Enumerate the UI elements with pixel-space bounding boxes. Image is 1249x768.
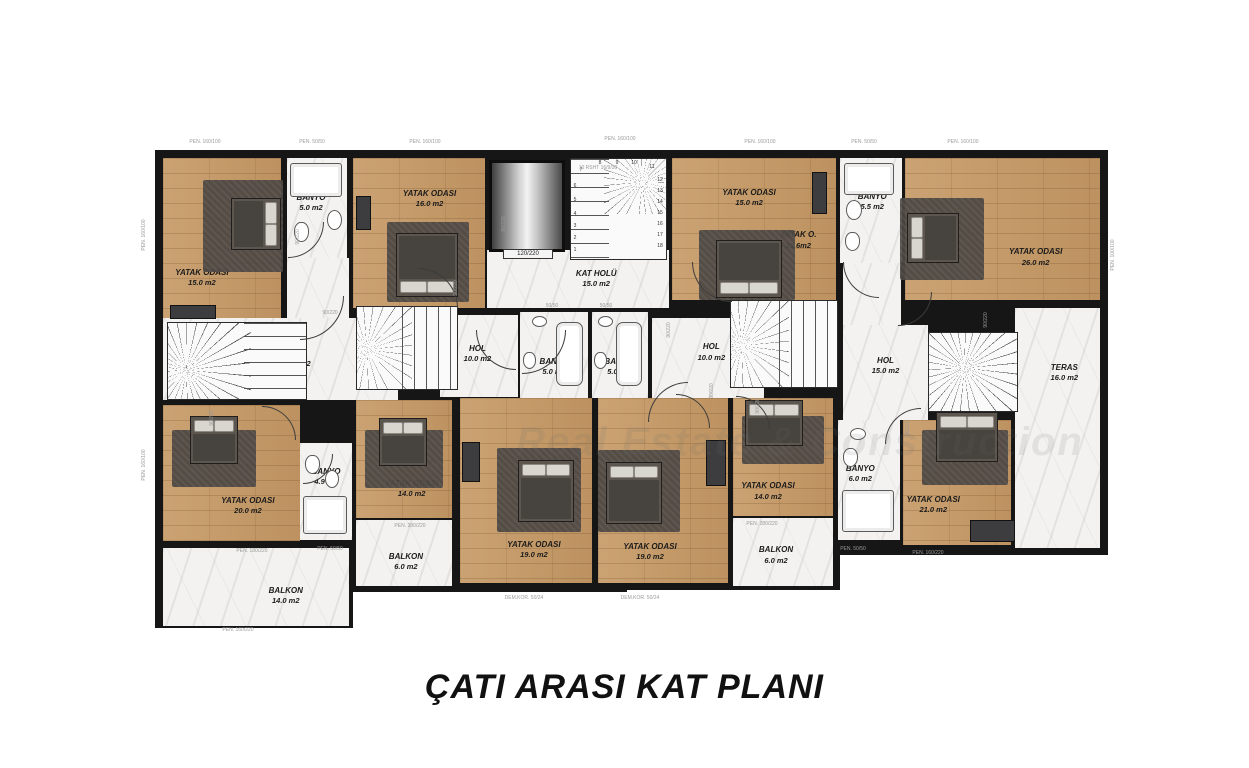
stair-step-number: 3 [574, 223, 577, 229]
stair-step-number: 1 [574, 247, 577, 253]
bed-bedroom-bottom-4 [606, 462, 662, 524]
room-area: 26.0 m2 [1009, 258, 1062, 268]
room-area: 19.0 m2 [507, 550, 560, 560]
dimension-label: PEN. 160/220 [222, 627, 253, 633]
dimension-label: PEN. 160/100 [947, 139, 978, 145]
room-name: YATAK ODASI [722, 188, 775, 198]
shower-fixture [303, 496, 347, 534]
room-label-kat-holu: KAT HOLÜ15.0 m2 [576, 269, 617, 289]
bed-pillow [634, 466, 658, 478]
sink-fixture [532, 316, 547, 327]
bed-pillow [911, 238, 923, 259]
room-teras [1015, 308, 1100, 548]
bed-pillow [383, 422, 403, 434]
sink-fixture [327, 210, 342, 230]
stair-step-number: 2 [574, 235, 577, 241]
wc-fixture [594, 352, 607, 369]
dimension-label: PEN. 100/100 [1110, 239, 1116, 270]
bed-bedroom-top-right [907, 213, 959, 263]
dimension-label: PEN. 280/220 [394, 523, 425, 529]
bed-duvet [234, 201, 263, 247]
dimension-label: PEN. 180/220 [236, 548, 267, 554]
room-name: YATAK ODASI [623, 541, 676, 551]
bed-duvet [193, 434, 235, 461]
dimension-label: PEN. 280/220 [746, 521, 777, 527]
stair-step-number: 18 [657, 243, 663, 249]
dimension-label: 10 RSHT 16/9/30 [579, 165, 618, 171]
stair-step-number: 16 [657, 221, 663, 227]
stair-step-number: 14 [657, 199, 663, 205]
room-label-bedroom-bottom-3: YATAK ODASI19.0 m2 [507, 540, 560, 560]
room-name: YATAK ODASI [221, 496, 274, 506]
plan-title: ÇATI ARASI KAT PLANI [0, 668, 1249, 707]
shower-fixture [844, 163, 894, 195]
wc-fixture [845, 232, 860, 251]
stair-core-top [570, 158, 667, 260]
stair-step-number: 4 [574, 211, 577, 217]
room-name: BALKON [269, 586, 303, 596]
room-label-balkon-left: BALKON14.0 m2 [269, 586, 303, 606]
stair-step-number: 6 [574, 183, 577, 189]
room-label-hol-15: HOL15.0 m2 [872, 356, 900, 376]
floor-plan-page: YATAK ODASI15.0 m2BANYO5.0 m2YATAK ODASI… [0, 0, 1249, 768]
dimension-label: 50/50 [600, 303, 613, 309]
room-name: YATAK ODASI [907, 495, 960, 505]
bed-pillow [911, 217, 923, 238]
dresser [970, 520, 1015, 542]
bed-pillow [265, 202, 277, 224]
stair-center-right [730, 300, 838, 388]
bed-bedroom-top-left [231, 198, 281, 250]
stair-left-fan [167, 322, 307, 400]
bed-pillow [967, 416, 994, 428]
room-area: 10.0 m2 [698, 353, 726, 363]
stair-step-number: 17 [657, 232, 663, 238]
dimension-label: PEN. 160/100 [409, 139, 440, 145]
room-area: 14.0 m2 [741, 492, 794, 502]
tub-fixture [616, 322, 642, 386]
room-label-bedroom-bottom-right: YATAK ODASI21.0 m2 [907, 495, 960, 515]
dimension-label: PEN. 160/100 [604, 136, 635, 142]
room-label-teras: TERAS16.0 m2 [1051, 363, 1079, 383]
dresser [812, 172, 827, 214]
room-label-hol-10-right: HOL10.0 m2 [698, 342, 726, 362]
bed-duvet [939, 430, 995, 459]
room-area: 21.0 m2 [907, 505, 960, 515]
stair-step-number: 10 [631, 160, 637, 166]
dimension-label: 90/220 [322, 310, 337, 316]
dimension-label: PEN. 160/100 [189, 139, 220, 145]
room-label-bedroom-bottom-4: YATAK ODASI19.0 m2 [623, 541, 676, 561]
stair-step-number: 5 [574, 197, 577, 203]
sink-fixture [846, 200, 862, 220]
room-name: YATAK ODASI [507, 540, 560, 550]
dresser [706, 440, 726, 486]
elevator-door-label: 120/220 [503, 249, 553, 259]
bed-pillow [940, 416, 967, 428]
dimension-label: 90/220 [755, 398, 761, 413]
dimension-label: 90/220 [501, 216, 507, 231]
stair-right-fan [928, 332, 1018, 412]
dimension-label: 90/220 [453, 280, 459, 295]
room-area: 6.0 m2 [846, 474, 875, 484]
bed-duvet [521, 478, 571, 519]
room-area: 20.0 m2 [221, 506, 274, 516]
room-area: 15.0 m2 [872, 366, 900, 376]
room-label-bedroom-top-right: YATAK ODASI26.0 m2 [1009, 247, 1062, 267]
dimension-label: 90/220 [295, 229, 301, 244]
dimension-label: PEN. 160/100 [141, 449, 147, 480]
room-label-balkon-5: BALKON6.0 m2 [759, 545, 793, 565]
room-label-bedroom-top-3: YATAK ODASI15.0 m2 [722, 188, 775, 208]
dresser [462, 442, 480, 482]
stair-center-left [356, 306, 458, 390]
dimension-label: DEM.KOR. 50/24 [621, 595, 660, 601]
bed-pillow [265, 224, 277, 246]
room-label-balkon-2: BALKON6.0 m2 [389, 552, 423, 572]
floor-plan-canvas: YATAK ODASI15.0 m2BANYO5.0 m2YATAK ODASI… [0, 0, 1249, 768]
sink-fixture [850, 428, 866, 440]
room-name: YATAK ODASI [403, 188, 456, 198]
dimension-label: 90/220 [209, 410, 215, 425]
dimension-label: PEN. 50/50 [317, 546, 343, 552]
bed-bedroom-bottom-2 [379, 418, 427, 466]
dimension-label: PEN. 50/50 [299, 139, 325, 145]
dimension-label: PEN. 160/100 [141, 219, 147, 250]
stair-step-number: 15 [657, 210, 663, 216]
stair-step-number: 12 [657, 177, 663, 183]
bed-pillow [774, 404, 799, 416]
room-name: HOL [872, 356, 900, 366]
stair-step-number: 11 [649, 164, 654, 170]
bed-bedroom-bottom-3 [518, 460, 574, 522]
room-label-bedroom-bottom-5: YATAK ODASI14.0 m2 [741, 481, 794, 501]
dimension-label: PEN. 160/100 [744, 139, 775, 145]
shower-fixture [842, 490, 894, 532]
room-name: YATAK ODASI [1009, 247, 1062, 257]
bed-pillow [403, 422, 423, 434]
room-name: BALKON [389, 552, 423, 562]
bed-pillow [749, 282, 778, 294]
dresser [170, 305, 216, 319]
dimension-label: PEN. 50/50 [851, 139, 877, 145]
room-name: YATAK ODASI [741, 481, 794, 491]
bed-bedroom-bottom-right [936, 412, 998, 462]
room-area: 16.0 m2 [1051, 373, 1079, 383]
room-name: TERAS [1051, 363, 1079, 373]
sink-fixture [598, 316, 613, 327]
dimension-label: PEN. 160/220 [912, 550, 943, 556]
room-balkon-left [163, 548, 349, 626]
bed-duvet [609, 480, 659, 521]
dimension-label: 50/50 [546, 303, 559, 309]
room-area: 5.0 m2 [297, 203, 326, 213]
room-area: 19.0 m2 [623, 552, 676, 562]
room-area: 5.5 m2 [858, 202, 887, 212]
dresser [356, 196, 371, 230]
room-name: BALKON [759, 545, 793, 555]
room-area: 14.0 m2 [385, 489, 438, 499]
bed-pillow [214, 420, 234, 432]
room-name: KAT HOLÜ [576, 269, 617, 279]
bed-pillow [522, 464, 546, 476]
stair-step-number: 13 [657, 188, 663, 194]
room-area: 14.0 m2 [269, 596, 303, 606]
room-label-bedroom-top-2: YATAK ODASI16.0 m2 [403, 188, 456, 208]
shower-fixture [290, 163, 342, 197]
dimension-label: DEM.KOR. 50/24 [505, 595, 544, 601]
room-area: 16.0 m2 [403, 199, 456, 209]
dimension-label: 90/220 [666, 322, 672, 337]
room-area: 6.0 m2 [389, 562, 423, 572]
bed-duvet [382, 436, 424, 463]
room-area: 15.0 m2 [576, 279, 617, 289]
bed-duvet [925, 216, 956, 260]
room-area: 6.0 m2 [759, 556, 793, 566]
dimension-label: 90/220 [983, 312, 989, 327]
dimension-label: PEN. 50/50 [840, 546, 866, 552]
sink-fixture [325, 470, 339, 488]
bed-pillow [546, 464, 570, 476]
room-name: HOL [698, 342, 726, 352]
room-area: 15.0 m2 [722, 198, 775, 208]
dimension-label: 90/220 [709, 383, 715, 398]
elevator-shaft [489, 160, 565, 252]
bed-pillow [610, 466, 634, 478]
room-area: 15.0 m2 [175, 278, 228, 288]
room-label-bathroom-top-2: BANYO5.5 m2 [858, 192, 887, 212]
room-label-bedroom-bottom-left: YATAK ODASI20.0 m2 [221, 496, 274, 516]
dimension-label: 90/220 [905, 420, 911, 435]
wc-fixture [843, 448, 858, 467]
